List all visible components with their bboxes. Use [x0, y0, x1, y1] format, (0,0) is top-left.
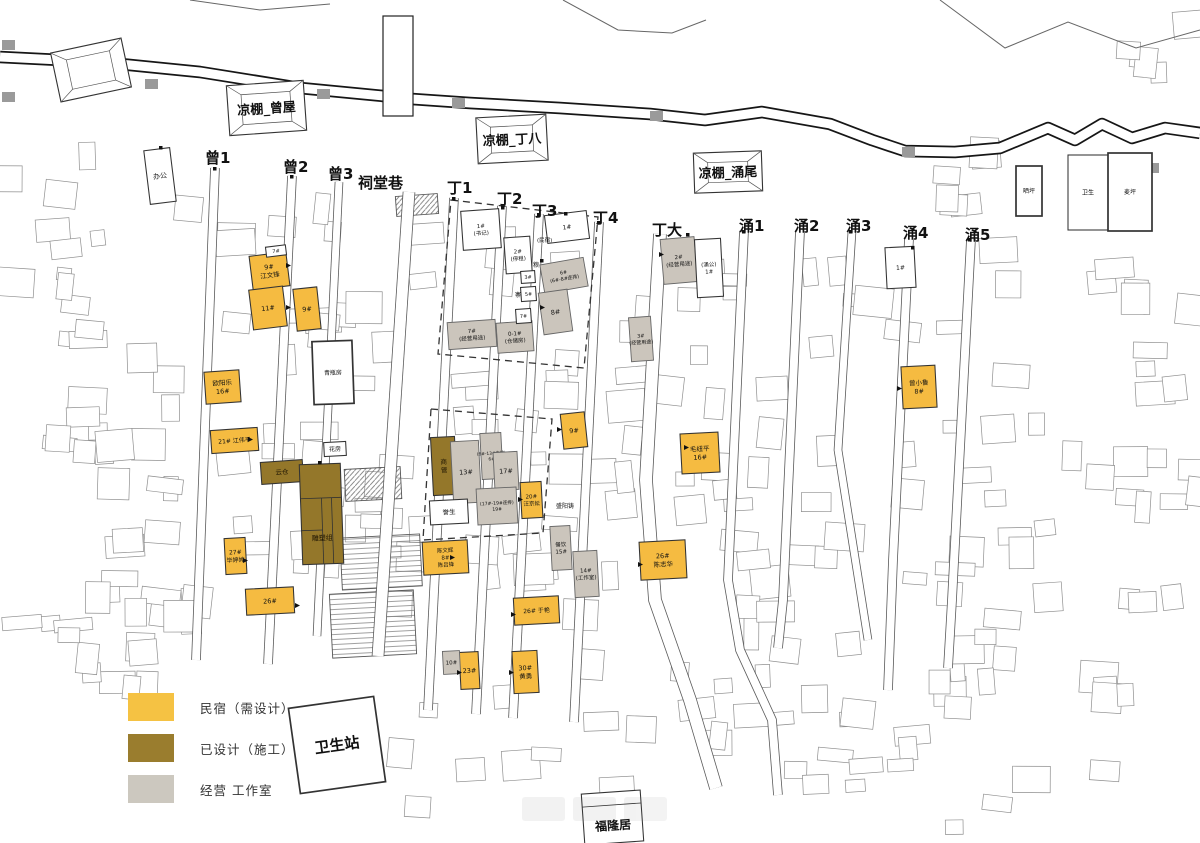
bldg-9b: 9#	[293, 287, 321, 331]
background-building	[1033, 582, 1063, 613]
bldg-9-jiangwenfeng: 9#江文锋	[249, 252, 290, 290]
background-building	[1012, 766, 1050, 793]
background-building	[801, 258, 818, 287]
background-building	[1117, 683, 1134, 706]
bldg-diaosuzu: 雕塑组	[299, 463, 343, 564]
bldg-qingpingfang: 青瓶房	[312, 340, 354, 404]
bldg-maiping: 麦坪	[1108, 153, 1152, 231]
bldg-10-label: 10#	[446, 660, 458, 667]
bldg-maiping-label: 麦坪	[1124, 188, 1136, 196]
bldg-17: 17#	[493, 451, 519, 490]
bldg-diaosuzu-shape	[299, 463, 343, 564]
background-building	[144, 520, 180, 545]
bldg-9c: 9#	[560, 412, 588, 449]
bldg-7-small: 7#	[516, 308, 532, 323]
background-building	[1175, 293, 1200, 327]
legend-label-jingying: 经营 工作室	[200, 780, 272, 799]
bldg-9b-label: 9#	[302, 305, 312, 314]
legend-row-jingying: 经营 工作室	[128, 775, 295, 803]
bldg-bangong: 办公	[144, 148, 176, 205]
background-building	[898, 736, 918, 761]
background-building	[981, 414, 1016, 444]
background-building	[1133, 342, 1167, 359]
street-zeng1-label: 曾1	[205, 149, 230, 167]
road-pier	[452, 98, 465, 108]
background-building	[1121, 283, 1150, 314]
bldg-21-jiangweiping: 21# 江伟平	[210, 427, 258, 453]
bldg-30-huangyong-label: 黄勇	[519, 671, 532, 681]
bldg-shangguan-label: 管	[441, 465, 448, 474]
background-building	[1172, 10, 1200, 40]
bldg-weisheng-label: 卫生	[1082, 189, 1094, 197]
background-building	[809, 335, 834, 358]
bldg-1b-label: 1#	[562, 224, 572, 232]
background-building	[361, 514, 383, 529]
legend-swatch-yisheji	[128, 734, 174, 762]
bldg-qingpingfang-label: 青瓶房	[324, 368, 342, 377]
background-building	[127, 343, 158, 373]
background-building	[1160, 494, 1188, 510]
legend-label-yisheji: 已设计（施工）	[200, 739, 295, 758]
bldg-2-tingzu: 2#(停租)	[504, 236, 532, 274]
bldg-huafang-label: 花房	[329, 445, 341, 454]
background-building	[849, 757, 883, 775]
background-building	[1086, 464, 1115, 491]
bldg-ouyangle-16: 欧阳乐16#	[204, 370, 241, 404]
background-building	[1161, 584, 1184, 611]
background-building	[992, 363, 1030, 389]
tick-marker	[452, 197, 456, 201]
bldg-5-small-label: 5#	[525, 291, 533, 297]
road-pier	[650, 111, 663, 121]
bldg-6-lianpai: 6#(6#-8#连排)	[540, 257, 588, 293]
background-building	[1089, 760, 1120, 782]
background-building	[164, 600, 195, 632]
background-building	[75, 642, 99, 674]
street-yong4-label: 涌4	[903, 224, 928, 242]
background-building	[756, 376, 789, 401]
bldg-chenwenhui-8: 陈文辉8#陈吕锋	[422, 540, 469, 575]
background-building	[97, 468, 130, 500]
background-building	[73, 440, 96, 464]
pavilion-unlabeled-roof-outer	[51, 38, 132, 102]
bldg-9c-label: 9#	[569, 426, 579, 435]
background-building	[1147, 449, 1166, 468]
background-building	[174, 195, 204, 223]
street-zeng3-label: 曾3	[328, 165, 353, 183]
background-building	[1062, 441, 1082, 471]
legend-row-minsu: 民宿（需设计）	[128, 693, 295, 721]
bldg-26-yuyan: 26# 于艳	[513, 596, 559, 625]
background-building	[531, 747, 561, 762]
legend-row-yisheji: 已设计（施工）	[128, 734, 295, 762]
bldg-30-huangyong: 30#黄勇	[512, 650, 539, 693]
bldg-1-yong4: 1#	[885, 246, 916, 288]
bldg-yonggong-1-label: 1#	[705, 269, 714, 275]
bldg-17-label: 17#	[499, 467, 513, 476]
background-building	[977, 668, 995, 695]
background-building	[704, 387, 725, 419]
background-building	[128, 639, 158, 666]
bridge	[383, 16, 413, 116]
background-building	[845, 779, 865, 793]
bldg-2-jingying: 2#(经营用途)	[660, 237, 698, 285]
bldg-26: 26#	[245, 587, 294, 615]
background-building	[736, 595, 760, 619]
bldg-7-small-top-label: 7#	[272, 248, 280, 255]
text-liang: 粮	[533, 261, 539, 269]
background-building	[544, 381, 579, 409]
background-building	[983, 608, 1021, 630]
bldg-26-chenzhihua-label: 陈志华	[653, 559, 673, 569]
background-building	[1113, 447, 1147, 477]
street-ding1-label: 丁1	[447, 179, 472, 197]
background-building	[2, 614, 42, 630]
background-building	[43, 179, 78, 209]
background-building	[936, 185, 959, 212]
background-building	[709, 721, 728, 750]
tick-marker	[564, 212, 568, 216]
street-ding4-label: 丁4	[593, 209, 618, 227]
bldg-huafang: 花房	[324, 441, 347, 456]
background-building	[1009, 537, 1034, 569]
text-minsu: (民宿)	[537, 236, 552, 244]
background-building	[984, 490, 1006, 507]
background-building	[1136, 361, 1155, 377]
street-citangxiang-label: 祠堂巷	[358, 174, 404, 192]
bldg-zengxiaolu-8: 曾小鲁8#	[901, 365, 937, 409]
background-building	[1095, 257, 1135, 280]
background-building	[836, 631, 862, 657]
bldg-27-bitingting: 27#毕婷婷	[224, 537, 247, 574]
bldg-7-small-top: 7#	[265, 245, 286, 257]
background-building	[56, 273, 74, 301]
bldg-2-tingzu-label: 2#	[514, 249, 523, 256]
bldg-yuncang: 云仓	[260, 460, 303, 485]
bldg-14-gongzuoshi: 14#(工作室)	[573, 550, 599, 597]
background-building	[996, 271, 1021, 298]
background-building	[79, 142, 96, 170]
background-building	[300, 422, 338, 440]
bldg-yusheng: 誉生	[429, 499, 468, 525]
background-building	[887, 758, 914, 772]
street-yong1-label: 涌1	[739, 217, 764, 235]
bldg-chenwenhui-8-label: 8#	[441, 555, 450, 561]
bldg-6-lianpai-label: 6#	[560, 270, 568, 277]
tick-marker	[159, 146, 163, 150]
background-building	[690, 346, 707, 365]
village-plan-map: 凉棚_曾屋凉棚_丁八凉棚_涌尾 9#江文锋11#9#欧阳乐16#21# 江伟平2…	[0, 0, 1200, 843]
background-building	[0, 166, 22, 192]
bldg-2-jingying-label: 2#	[674, 254, 683, 261]
bldg-1-shuji: 1#(书记)	[461, 209, 502, 251]
background-building	[404, 796, 431, 818]
bldg-8: 8#	[538, 289, 573, 335]
background-building	[757, 601, 795, 622]
bldg-17-19-lianpai-label: 19#	[492, 506, 502, 513]
background-building	[747, 457, 769, 489]
background-building	[929, 670, 950, 694]
background-building	[45, 425, 71, 453]
bldg-maoniuping-16: 毛纽平16#	[680, 432, 720, 474]
bldg-13-label: 13#	[459, 468, 473, 477]
bldg-14-gongzuoshi-label: 14#	[580, 568, 592, 575]
tick-marker	[318, 461, 322, 465]
bldg-01-cangchufang-label: 0-1#	[508, 331, 522, 338]
boundary-line	[940, 0, 1200, 48]
background-building	[85, 582, 110, 614]
street-zeng2-label: 曾2	[283, 158, 308, 176]
tick-marker	[213, 167, 217, 171]
background-building	[162, 395, 180, 422]
boundary-line	[190, 0, 330, 10]
road-pier	[2, 40, 15, 50]
road-pier	[902, 147, 915, 157]
road-pier	[317, 89, 330, 99]
bldg-weisheng: 卫生	[1068, 155, 1108, 230]
background-building	[802, 774, 829, 794]
street-ding3-label: 丁3	[532, 202, 557, 220]
background-building	[606, 388, 647, 423]
bldg-23: 23#	[459, 652, 480, 690]
bldg-7-jingying-label: 7#	[468, 329, 477, 336]
tick-marker	[686, 233, 690, 237]
background-building	[409, 222, 444, 245]
watermark	[522, 797, 667, 821]
background-building	[936, 320, 965, 334]
bldg-yonggong-1: (涌公)1#	[695, 238, 724, 297]
background-building	[112, 528, 143, 554]
background-building	[58, 628, 80, 643]
background-building	[756, 417, 784, 450]
background-building	[66, 407, 100, 428]
street-yong2-label: 涌2	[794, 217, 819, 235]
background-building	[903, 571, 928, 585]
bldg-maoniuping-16-label: 16#	[693, 453, 707, 462]
text-shengyangzhu: 盛阳铸	[556, 502, 574, 510]
background-building	[0, 267, 35, 298]
background-building	[801, 685, 828, 713]
background-building	[1116, 41, 1140, 60]
street-yong5-label: 涌5	[965, 226, 990, 244]
background-building	[50, 238, 82, 260]
tick-marker	[911, 246, 915, 250]
background-building	[346, 291, 383, 323]
background-building	[409, 272, 437, 290]
background-building	[1135, 491, 1152, 523]
bldg-5-small: 5#	[521, 286, 537, 301]
background-building	[531, 452, 546, 465]
bldg-26-label: 26#	[263, 597, 277, 606]
entry-marker	[295, 603, 300, 608]
background-building	[933, 166, 961, 185]
pavilion-dingba-label: 凉棚_丁八	[482, 130, 542, 149]
bldg-3-small: 3#	[521, 271, 536, 284]
background-building	[736, 549, 770, 571]
bldg-7-small-label: 7#	[520, 313, 528, 319]
bldg-26-chenzhihua-label: 26#	[656, 552, 670, 561]
street-zeng1-surface	[196, 168, 215, 660]
bldg-shaiping: 晒坪	[1016, 166, 1042, 216]
background-building	[75, 319, 105, 339]
background-building	[601, 561, 618, 590]
background-building	[215, 228, 256, 256]
boundary-line	[563, 0, 706, 33]
background-building	[313, 193, 331, 225]
background-building	[961, 467, 992, 484]
street-yong3-label: 涌3	[846, 217, 871, 235]
bldg-8-label: 8#	[550, 308, 561, 317]
background-building	[824, 522, 865, 552]
bldg-bangong-label: 办公	[152, 171, 167, 182]
bldg-zengxiaolu-8-label: 曾小鲁	[909, 378, 929, 388]
bldg-yuncang-label: 云仓	[275, 467, 289, 477]
pavilion-zengwu: 凉棚_曾屋	[226, 80, 306, 135]
background-building	[769, 636, 801, 665]
bldg-canyin-15-label: 15#	[555, 549, 567, 556]
background-building	[1128, 591, 1157, 612]
background-building	[1028, 413, 1044, 435]
bldg-26-chenzhihua: 26#陈志华	[639, 540, 687, 580]
background-building	[153, 366, 184, 393]
background-building	[816, 435, 836, 466]
bldg-11: 11#	[249, 286, 288, 330]
bldg-3-small-label: 3#	[524, 274, 532, 280]
pavilion-yongwei-label: 凉棚_涌尾	[699, 164, 758, 182]
bldg-30-huangyong-label: 30#	[518, 664, 532, 673]
text-zhai: 寨	[515, 291, 521, 299]
road-pier	[145, 79, 158, 89]
background-building	[90, 230, 106, 247]
bldg-26-yuyan-label: 26# 于艳	[523, 606, 550, 615]
bldg-27-bitingting-label: 27#	[229, 549, 242, 557]
bldg-27-bitingting-label: 毕婷婷	[227, 556, 245, 565]
background-building	[456, 758, 486, 782]
bldg-maoniuping-16-label: 毛纽平	[690, 444, 710, 454]
background-building	[853, 285, 894, 318]
bldg-zengxiaolu-8-label: 8#	[914, 387, 924, 395]
background-building	[982, 794, 1013, 813]
tick-marker	[540, 259, 544, 263]
background-building	[801, 493, 831, 512]
background-building	[580, 649, 605, 681]
bldg-shangguan-label: 商	[440, 457, 447, 466]
background-building	[583, 711, 618, 731]
street-dingda-label: 丁大	[652, 221, 682, 239]
pavilion-yongwei: 凉棚_涌尾	[693, 151, 762, 193]
bldg-yusheng-label: 誉生	[442, 507, 456, 517]
background-building	[975, 629, 996, 645]
background-building	[945, 820, 963, 835]
background-building	[840, 698, 876, 730]
background-building	[1162, 375, 1188, 402]
bldg-3-jingying-label: 3#	[637, 333, 645, 339]
bldg-weishengzhan: 卫生站	[288, 696, 385, 793]
bldg-20-wangjingyun-label: 20#	[525, 494, 537, 501]
background-building	[221, 311, 250, 334]
bldg-canyin-15: 餐饮15#	[550, 526, 572, 571]
bldg-11-label: 11#	[261, 303, 276, 313]
bldg-1-yong4-label: 1#	[896, 264, 905, 271]
bldg-3-jingying: 3#(经营用途)	[628, 316, 655, 362]
bldg-shaiping-label: 晒坪	[1023, 187, 1035, 195]
background-building	[1034, 519, 1056, 537]
bldg-diaosuzu-label: 雕塑组	[312, 533, 333, 543]
background-building	[744, 618, 759, 650]
bldg-7-jingying: 7#(经营用途)	[447, 319, 497, 349]
background-building	[387, 737, 415, 768]
background-building	[944, 696, 971, 720]
background-building	[626, 716, 657, 744]
bldg-01-cangchufang: 0-1#(仓储房)	[496, 321, 534, 353]
bldg-ouyangle-16-label: 16#	[216, 387, 230, 396]
background-building	[817, 747, 853, 763]
background-building	[622, 425, 643, 455]
background-building	[993, 646, 1017, 671]
bldg-17-19-lianpai: (17#-19#连排)19#	[476, 487, 518, 525]
background-building	[35, 218, 70, 243]
legend-swatch-jingying	[128, 775, 174, 803]
background-building	[714, 678, 733, 694]
bldg-ouyangle-16-label: 欧阳乐	[212, 377, 233, 387]
background-building	[233, 516, 253, 534]
bldg-23-label: 23#	[462, 666, 476, 675]
background-building	[95, 428, 135, 462]
background-building	[451, 371, 490, 388]
background-building	[674, 494, 707, 525]
pavilion-dingba: 凉棚_丁八	[476, 114, 548, 164]
bldg-1-shuji-label: 1#	[477, 224, 486, 231]
main-road	[0, 0, 1200, 173]
street-ding2-label: 丁2	[497, 190, 522, 208]
background-building	[614, 460, 634, 493]
background-building	[943, 420, 957, 433]
legend-swatch-minsu	[128, 693, 174, 721]
background-building	[125, 598, 147, 626]
bldg-20-wangjingyun: 20#汪京妘	[520, 481, 543, 518]
background-building	[1186, 476, 1200, 507]
pavilion-unlabeled	[51, 38, 132, 102]
road-pier	[2, 92, 15, 102]
background-building	[131, 428, 165, 460]
legend: 民宿（需设计） 已设计（施工） 经营 工作室	[128, 693, 295, 803]
legend-label-minsu: 民宿（需设计）	[200, 698, 295, 717]
